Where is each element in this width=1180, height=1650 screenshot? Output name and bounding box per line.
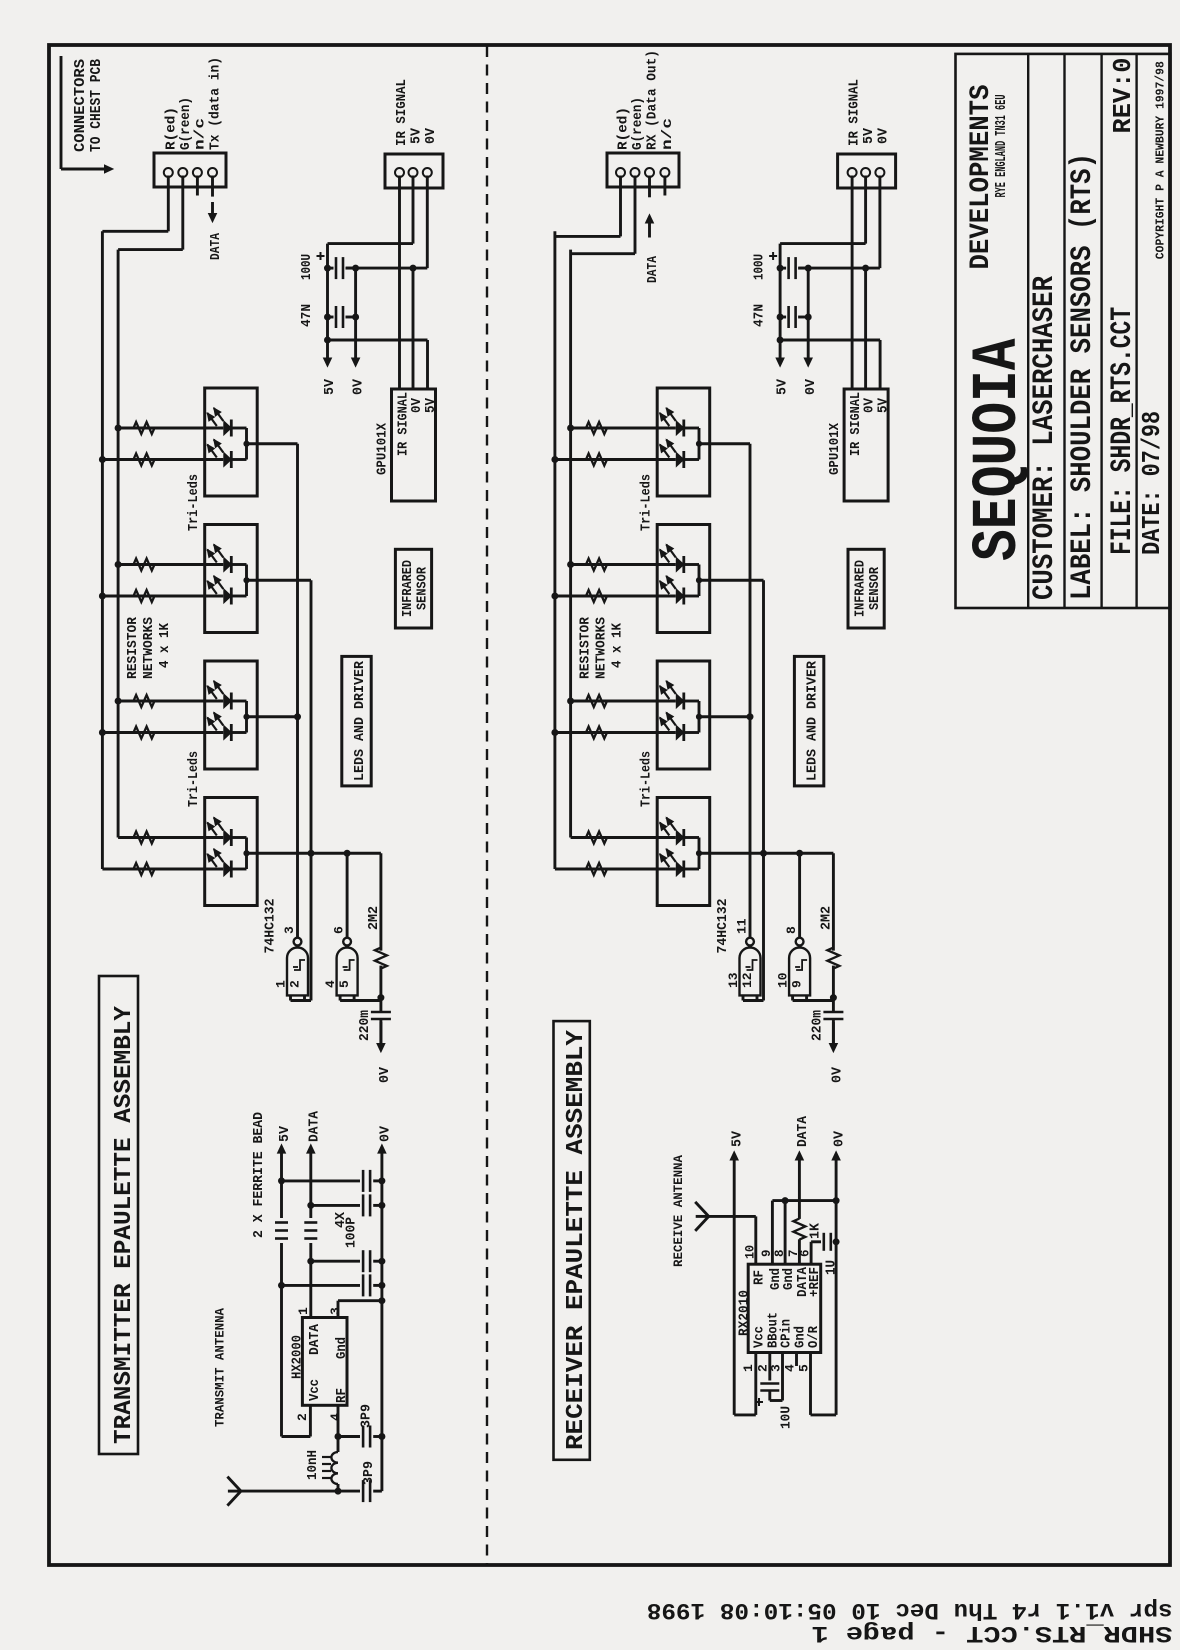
svg-text:12: 12 (740, 972, 755, 988)
svg-text:11: 11 (735, 918, 750, 934)
svg-text:LEDS AND DRIVER: LEDS AND DRIVER (353, 660, 368, 781)
svg-text:9: 9 (760, 1249, 774, 1257)
svg-text:G(reen): G(reen) (631, 97, 646, 150)
svg-text:5: 5 (337, 980, 352, 988)
svg-text:GPU101X: GPU101X (827, 422, 843, 475)
svg-text:DATA: DATA (208, 233, 224, 260)
svg-text:5V: 5V (410, 127, 425, 144)
svg-text:RX (Data Out): RX (Data Out) (646, 50, 661, 150)
svg-text:100P: 100P (344, 1217, 360, 1248)
svg-text:2: 2 (295, 1413, 310, 1421)
svg-text:6: 6 (332, 926, 347, 934)
svg-text:10U: 10U (780, 1406, 795, 1429)
svg-text:spr v1.1 r4 Thu Dec 10 05:10:0: spr v1.1 r4 Thu Dec 10 05:10:08 1998 (647, 1597, 1173, 1623)
svg-text:2M2: 2M2 (818, 906, 834, 930)
svg-text:0V: 0V (410, 397, 425, 413)
svg-text:47N: 47N (299, 304, 315, 327)
svg-text:9: 9 (790, 980, 805, 988)
svg-text:CUSTOMER: LASERCHASER: CUSTOMER: LASERCHASER (1028, 276, 1062, 600)
svg-text:4: 4 (783, 1364, 798, 1372)
svg-text:0V: 0V (351, 378, 367, 395)
svg-text:220m: 220m (357, 1010, 373, 1041)
svg-text:DATA: DATA (795, 1115, 811, 1147)
svg-text:13: 13 (726, 972, 741, 988)
svg-text:HX2000: HX2000 (290, 1335, 306, 1379)
svg-text:COPYRIGHT P A NEWBURY 1997/98: COPYRIGHT P A NEWBURY 1997/98 (1154, 61, 1168, 259)
svg-text:INFRARED: INFRARED (854, 560, 869, 617)
svg-text:0V: 0V (377, 1066, 393, 1083)
svg-text:2 X FERRITE BEAD: 2 X FERRITE BEAD (252, 1112, 267, 1238)
svg-text:3: 3 (769, 1364, 784, 1372)
svg-text:100U: 100U (299, 254, 315, 280)
svg-text:4 x 1K: 4 x 1K (610, 622, 626, 668)
svg-text:+REF: +REF (808, 1267, 823, 1297)
svg-text:SENSOR: SENSOR (416, 566, 431, 610)
svg-text:n/c: n/c (194, 118, 209, 150)
svg-text:IR SIGNAL: IR SIGNAL (395, 79, 410, 146)
svg-text:Tri-Leds: Tri-Leds (186, 474, 202, 531)
svg-text:10: 10 (744, 1245, 758, 1259)
svg-text:TRANSMITTER EPAULETTE ASSEMBLY: TRANSMITTER EPAULETTE ASSEMBLY (111, 1005, 138, 1444)
svg-text:INFRARED: INFRARED (401, 560, 416, 617)
svg-text:Vcc: Vcc (753, 1326, 768, 1348)
svg-text:Tri-Leds: Tri-Leds (639, 751, 655, 807)
svg-text:2: 2 (288, 980, 303, 988)
svg-text:74HC132: 74HC132 (263, 899, 279, 954)
svg-text:SEQUOIA: SEQUOIA (963, 338, 1035, 561)
svg-text:RESISTOR: RESISTOR (125, 616, 141, 679)
svg-text:1: 1 (274, 980, 289, 988)
svg-text:DATE: 07/98: DATE: 07/98 (1137, 411, 1167, 555)
svg-text:CONNECTORS: CONNECTORS (73, 59, 89, 152)
svg-text:0V: 0V (803, 378, 819, 395)
svg-text:RF: RF (335, 1388, 350, 1403)
svg-text:R(ed): R(ed) (165, 107, 180, 150)
svg-text:1U: 1U (825, 1260, 840, 1275)
svg-text:RESISTOR: RESISTOR (578, 616, 594, 679)
svg-text:6: 6 (799, 1249, 813, 1257)
svg-text:47N: 47N (752, 304, 768, 327)
svg-text:5V: 5V (322, 378, 338, 395)
svg-text:74HC132: 74HC132 (715, 899, 731, 954)
svg-text:5V: 5V (775, 378, 791, 395)
svg-text:1K: 1K (808, 1222, 824, 1239)
svg-text:0V: 0V (832, 1130, 848, 1147)
svg-text:10nH: 10nH (305, 1450, 321, 1480)
svg-text:LABEL: SHOULDER SENSORS (RTS): LABEL: SHOULDER SENSORS (RTS) (1066, 153, 1100, 600)
svg-text:Tri-Leds: Tri-Leds (639, 474, 655, 531)
svg-text:5V: 5V (730, 1130, 746, 1147)
svg-text:0V: 0V (378, 1125, 394, 1142)
svg-text:0V: 0V (829, 1066, 845, 1083)
svg-text:NETWORKS: NETWORKS (594, 617, 610, 679)
svg-text:4: 4 (323, 980, 338, 988)
svg-text:O/R: O/R (807, 1325, 822, 1348)
svg-text:3P9: 3P9 (359, 1404, 375, 1428)
svg-text:RX2010: RX2010 (737, 1290, 753, 1336)
svg-text:G(reen): G(reen) (179, 97, 194, 150)
svg-text:Tx (data in): Tx (data in) (209, 57, 224, 150)
svg-text:10: 10 (776, 972, 791, 988)
svg-text:R(ed): R(ed) (617, 107, 632, 150)
svg-text:RECEIVER EPAULETTE ASSEMBLY: RECEIVER EPAULETTE ASSEMBLY (563, 1029, 590, 1450)
svg-text:LEDS AND DRIVER: LEDS AND DRIVER (806, 660, 821, 781)
svg-text:REV:0: REV:0 (1108, 58, 1138, 134)
svg-text:FILE: SHDR_RTS.CCT: FILE: SHDR_RTS.CCT (1106, 307, 1140, 555)
svg-text:8: 8 (784, 926, 799, 934)
svg-text:DATA: DATA (307, 1110, 323, 1142)
svg-text:SENSOR: SENSOR (868, 566, 883, 610)
svg-text:3: 3 (328, 1307, 343, 1315)
svg-text:TRANSMIT ANTENNA: TRANSMIT ANTENNA (213, 1308, 228, 1427)
svg-text:TO CHEST PCB: TO CHEST PCB (89, 59, 105, 152)
svg-text:3P9: 3P9 (361, 1461, 377, 1485)
svg-text:NETWORKS: NETWORKS (141, 617, 157, 679)
svg-text:GPU101X: GPU101X (375, 422, 391, 475)
svg-text:5: 5 (797, 1364, 812, 1372)
svg-text:5V: 5V (877, 397, 892, 413)
svg-text:RF: RF (753, 1270, 768, 1285)
svg-text:IR SIGNAL: IR SIGNAL (848, 79, 863, 146)
svg-text:2M2: 2M2 (366, 906, 382, 930)
svg-text:220m: 220m (809, 1010, 825, 1041)
svg-text:1: 1 (296, 1307, 311, 1315)
svg-text:Vcc: Vcc (308, 1379, 323, 1401)
svg-text:DATA: DATA (645, 256, 661, 283)
svg-text:5V: 5V (862, 127, 877, 144)
svg-text:0V: 0V (877, 127, 892, 144)
svg-text:RYE ENGLAND TN31 6EU: RYE ENGLAND TN31 6EU (993, 95, 1010, 198)
svg-text:8: 8 (773, 1249, 787, 1257)
svg-text:Tri-Leds: Tri-Leds (186, 751, 202, 807)
svg-text:0V: 0V (424, 127, 439, 144)
svg-text:CPin: CPin (780, 1319, 795, 1348)
svg-text:5V: 5V (424, 397, 439, 413)
svg-text:DATA: DATA (308, 1323, 323, 1355)
svg-text:100U: 100U (752, 254, 768, 280)
svg-text:RECEIVE ANTENNA: RECEIVE ANTENNA (671, 1155, 686, 1267)
svg-text:5V: 5V (277, 1125, 293, 1142)
svg-text:n/c: n/c (661, 118, 676, 150)
svg-text:Gnd: Gnd (782, 1268, 797, 1290)
svg-text:4: 4 (328, 1413, 343, 1421)
svg-text:1: 1 (741, 1364, 756, 1372)
svg-text:4 x 1K: 4 x 1K (157, 622, 173, 668)
svg-text:0V: 0V (863, 397, 878, 413)
svg-text:Gnd: Gnd (335, 1337, 350, 1359)
svg-text:3: 3 (282, 926, 297, 934)
svg-text:SHDR_RTS.CCT - page 1: SHDR_RTS.CCT - page 1 (811, 1620, 1172, 1646)
